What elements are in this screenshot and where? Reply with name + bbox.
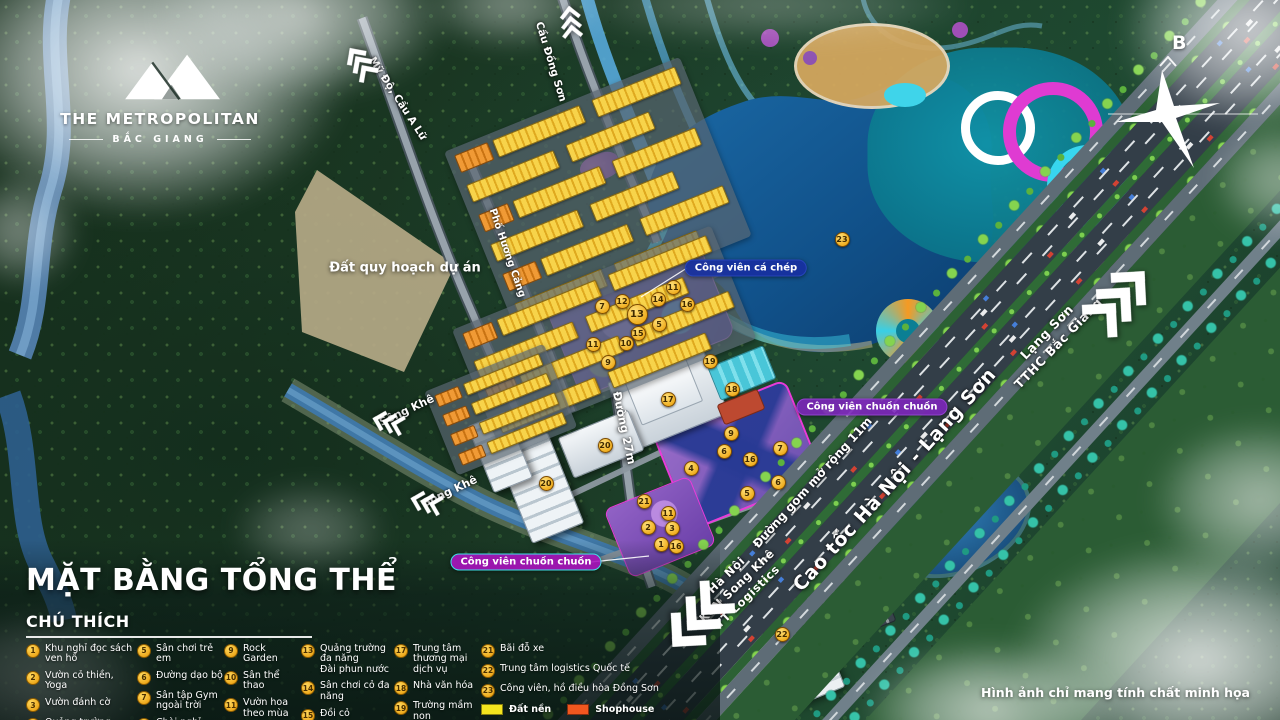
map-badge: 10 — [619, 336, 634, 351]
compass-star-icon — [1108, 56, 1258, 186]
legend-item-label: Khu nghỉ đọc sách ven hồ — [45, 644, 137, 665]
logo-rule-right — [217, 139, 251, 140]
map-badge: 9 — [601, 355, 616, 370]
map-badge: 7 — [773, 441, 788, 456]
legend-item-number: 23 — [481, 684, 495, 698]
legend-item-number: 17 — [394, 644, 408, 658]
map-badge: 23 — [835, 232, 850, 247]
chevron-glyph — [671, 611, 707, 647]
mountain-logo-icon — [100, 50, 220, 102]
legend-divider — [26, 636, 312, 638]
legend-item: 2Vườn cỏ thiền, Yoga — [26, 671, 137, 692]
map-badge: 22 — [775, 627, 790, 642]
logo-rule-left — [69, 139, 103, 140]
legend-item-number: 6 — [137, 671, 151, 685]
legend-item-label: Công viên, hồ điều hòa Đồng Sơn — [500, 684, 659, 695]
legend-item-number: 5 — [137, 644, 151, 658]
legend-item-number: 22 — [481, 664, 495, 678]
legend-item-label: Quảng trường đa năng Đài phun nước — [320, 644, 394, 676]
map-badge: 3 — [665, 521, 680, 536]
map-badge: 11 — [666, 280, 681, 295]
legend-item-label: Trung tâm logistics Quốc tế — [500, 664, 630, 675]
map-badge: 4 — [684, 461, 699, 476]
logo-name: THE METROPOLITAN — [52, 110, 268, 128]
map-badge: 19 — [703, 354, 718, 369]
legend-column: 1Khu nghỉ đọc sách ven hồ2Vườn cỏ thiền,… — [26, 644, 137, 720]
map-badge: 11 — [586, 337, 601, 352]
logo-location: BẮC GIANG — [112, 134, 207, 145]
map-badge: 20 — [539, 476, 554, 491]
map-badge: 16 — [680, 297, 695, 312]
legend-item-number: 3 — [26, 698, 40, 712]
map-badge: 18 — [725, 382, 740, 397]
legend-item: 21Bãi đỗ xe — [481, 644, 671, 658]
legend-item: 19Trường mầm non — [394, 701, 481, 720]
legend-item: 11Vườn hoa theo mùa — [224, 698, 301, 719]
legend-column: 9Rock Garden10Sân thể thao11Vườn hoa the… — [224, 644, 301, 720]
legend-swatch-label: Shophouse — [595, 704, 654, 715]
legend-column: 17Trung tâm thương mại dịch vụ18Nhà văn … — [394, 644, 481, 720]
legend-column: 21Bãi đỗ xe22Trung tâm logistics Quốc tế… — [481, 644, 671, 715]
chevron-glyph — [347, 48, 367, 68]
legend-item-number: 2 — [26, 671, 40, 685]
legend-item: 3Vườn đánh cờ — [26, 698, 137, 712]
legend-item: 10Sân thể thao — [224, 671, 301, 692]
direction-chevrons-icon — [555, 8, 587, 45]
map-badge: 17 — [661, 392, 676, 407]
map-badge: 16 — [669, 539, 684, 554]
map-badge: 15 — [631, 326, 646, 341]
legend-columns: 1Khu nghỉ đọc sách ven hồ2Vườn cỏ thiền,… — [26, 644, 671, 720]
disclaimer-text: Hình ảnh chỉ mang tính chất minh họa — [981, 685, 1250, 700]
legend-item: 22Trung tâm logistics Quốc tế — [481, 664, 671, 678]
map-badge: 20 — [598, 438, 613, 453]
compass-north-label: B — [1172, 32, 1186, 54]
park-name-chip: Công viên cá chép — [685, 260, 807, 277]
legend-item-label: Đồi cỏ — [320, 709, 350, 720]
map-badge: 5 — [652, 317, 667, 332]
legend-item-number: 1 — [26, 644, 40, 658]
legend-item-number: 14 — [301, 681, 315, 695]
map-badge: 21 — [637, 494, 652, 509]
park-name-chip: Công viên chuồn chuồn — [796, 399, 947, 416]
legend-item-number: 19 — [394, 701, 408, 715]
map-badge: 5 — [740, 486, 755, 501]
legend-swatches: Đất nềnShophouse — [481, 704, 671, 715]
legend-item-number: 11 — [224, 698, 238, 712]
map-badge: 11 — [661, 506, 676, 521]
legend-item-label: Rock Garden — [243, 644, 301, 665]
legend-item-number: 10 — [224, 671, 238, 685]
legend-item: 9Rock Garden — [224, 644, 301, 665]
map-badge: 7 — [595, 299, 610, 314]
planned-land-label: Đất quy hoạch dự án — [329, 261, 481, 276]
map-badge: 16 — [743, 452, 758, 467]
legend-item-label: Vườn cỏ thiền, Yoga — [45, 671, 137, 692]
legend-item: 15Đồi cỏ — [301, 709, 394, 720]
legend-swatch — [481, 704, 503, 715]
map-badge: 6 — [717, 444, 732, 459]
legend-item: 17Trung tâm thương mại dịch vụ — [394, 644, 481, 676]
map-badge: 12 — [615, 294, 630, 309]
legend-item: 7Sân tập Gym ngoài trời — [137, 691, 224, 712]
legend-item-label: Vườn hoa theo mùa — [243, 698, 301, 719]
legend-item: 14Sân chơi cỏ đa năng — [301, 681, 394, 702]
legend-column: 5Sân chơi trẻ em6Đường dạo bộ7Sân tập Gy… — [137, 644, 224, 720]
legend-item-label: Sân chơi cỏ đa năng — [320, 681, 394, 702]
legend-item: 5Sân chơi trẻ em — [137, 644, 224, 665]
map-badge: 9 — [724, 426, 739, 441]
legend-item-label: Sân thể thao — [243, 671, 301, 692]
legend-item: 23Công viên, hồ điều hòa Đồng Sơn — [481, 684, 671, 698]
legend-item-number: 7 — [137, 691, 151, 705]
project-logo: THE METROPOLITAN BẮC GIANG — [52, 50, 268, 145]
legend-item-number: 13 — [301, 644, 315, 658]
legend-panel: CHÚ THÍCH 1Khu nghỉ đọc sách ven hồ2Vườn… — [26, 612, 671, 720]
chevron-glyph — [1111, 271, 1147, 307]
legend-item: 18Nhà văn hóa — [394, 681, 481, 695]
legend-item-number: 15 — [301, 709, 315, 720]
legend-item-label: Sân tập Gym ngoài trời — [156, 691, 224, 712]
park-name-chip: Công viên chuồn chuồn — [450, 554, 601, 571]
legend-item-number: 21 — [481, 644, 495, 658]
legend-swatch-label: Đất nền — [509, 704, 551, 715]
legend-item-number: 9 — [224, 644, 238, 658]
legend-swatch — [567, 704, 589, 715]
page-title: MẶT BẰNG TỔNG THỂ — [26, 563, 397, 598]
legend-item: 6Đường dạo bộ — [137, 671, 224, 685]
legend-item-number: 18 — [394, 681, 408, 695]
legend-item-label: Trung tâm thương mại dịch vụ — [413, 644, 481, 676]
legend-item: 13Quảng trường đa năng Đài phun nước — [301, 644, 394, 676]
map-badge: 14 — [651, 292, 666, 307]
legend-item-label: Đường dạo bộ — [156, 671, 223, 682]
legend-item: 1Khu nghỉ đọc sách ven hồ — [26, 644, 137, 665]
legend-item-label: Nhà văn hóa — [413, 681, 473, 692]
legend-item-label: Bãi đỗ xe — [500, 644, 544, 655]
legend-item-label: Trường mầm non — [413, 701, 481, 720]
map-badge: 6 — [771, 475, 786, 490]
map-badge: 13 — [627, 304, 648, 325]
map-badge: 2 — [641, 520, 656, 535]
legend-heading: CHÚ THÍCH — [26, 612, 671, 631]
legend-column: 13Quảng trường đa năng Đài phun nước14Sâ… — [301, 644, 394, 720]
legend-item-label: Vườn đánh cờ — [45, 698, 110, 709]
legend-item-label: Sân chơi trẻ em — [156, 644, 224, 665]
map-badge: 1 — [654, 537, 669, 552]
masterplan-poster: Đất quy hoạch dự án 71213141116515101191… — [0, 0, 1280, 720]
